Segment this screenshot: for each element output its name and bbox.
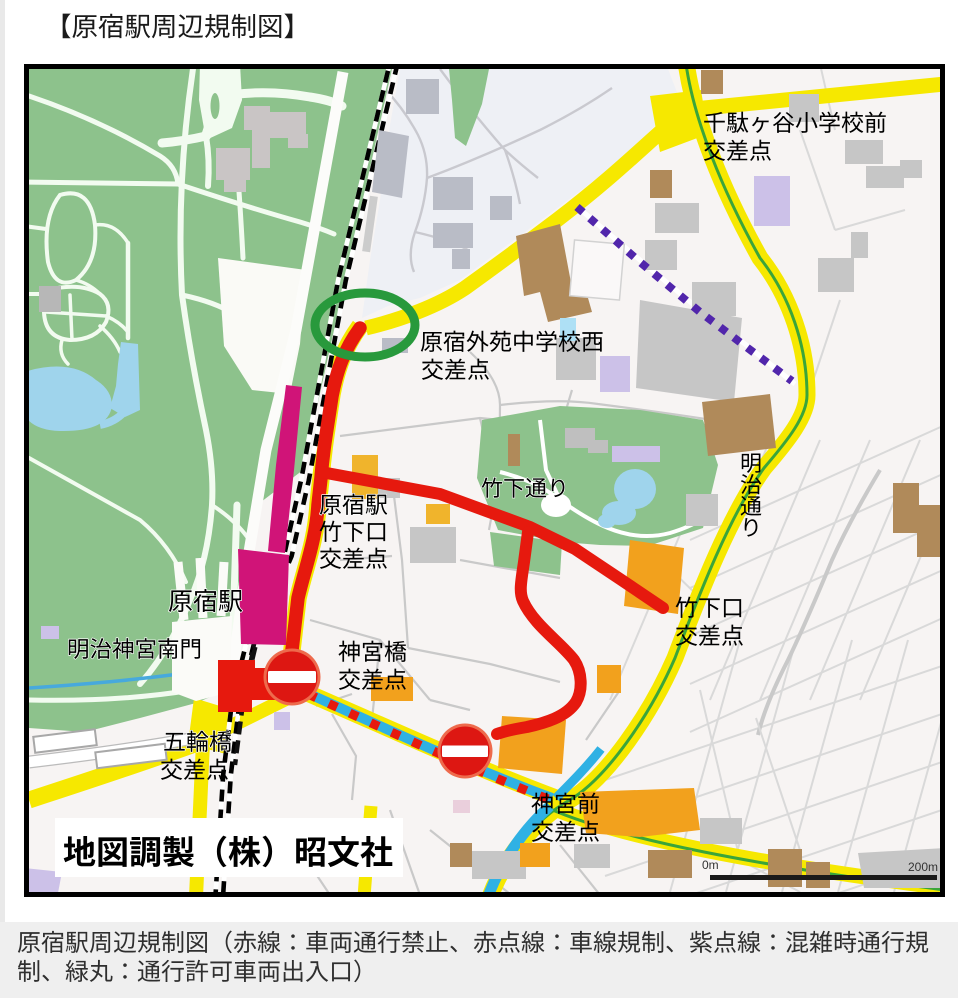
svg-text:0m: 0m xyxy=(702,858,719,872)
svg-text:200m: 200m xyxy=(908,860,938,874)
